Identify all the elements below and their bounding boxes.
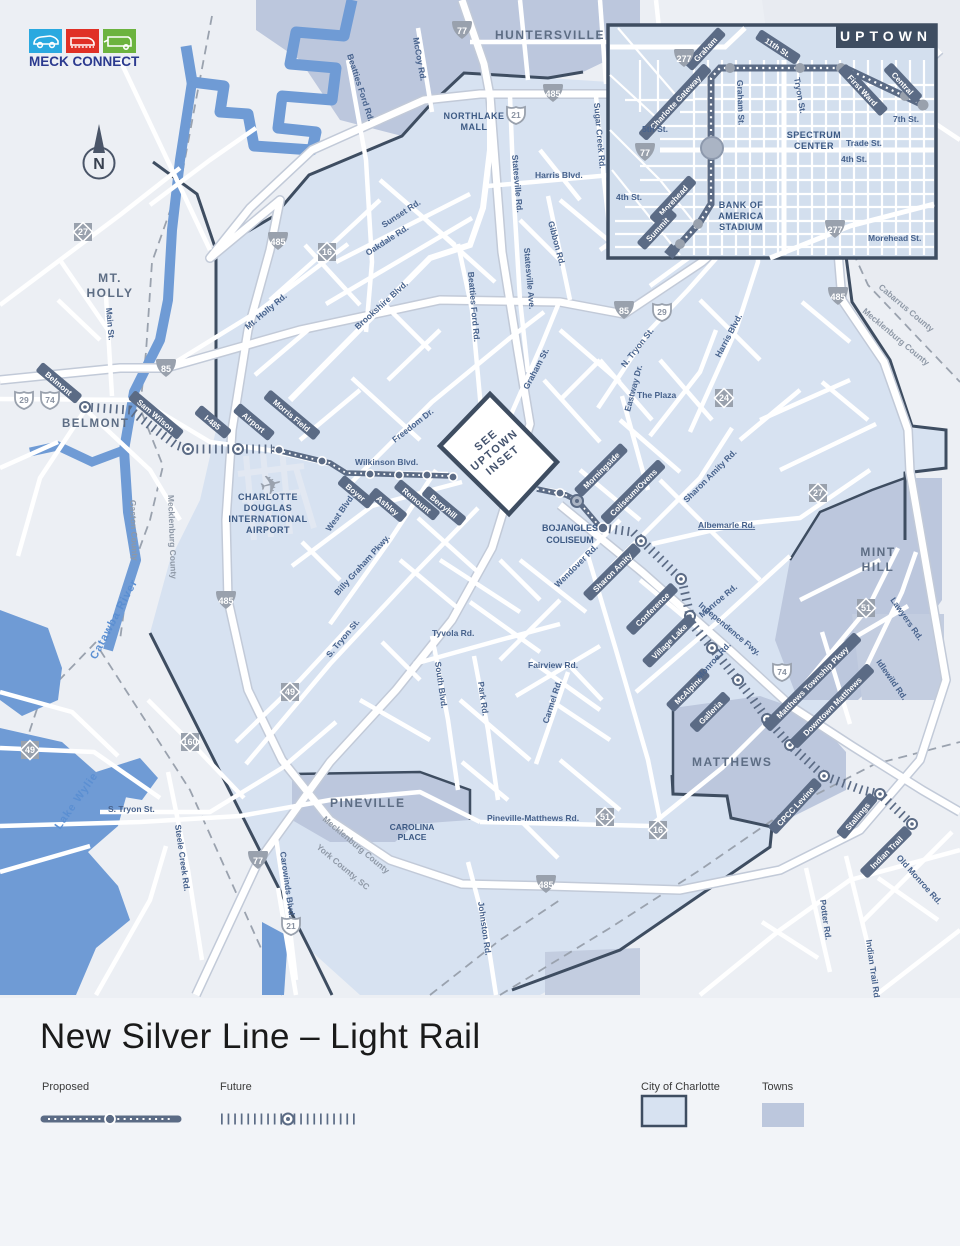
svg-text:85: 85 [161, 364, 171, 374]
svg-text:485: 485 [270, 237, 285, 247]
svg-text:Tyvola Rd.: Tyvola Rd. [432, 628, 474, 638]
svg-text:Trade St.: Trade St. [846, 138, 882, 148]
svg-text:MINTHILL: MINTHILL [860, 545, 895, 574]
svg-text:HUNTERSVILLE: HUNTERSVILLE [495, 28, 605, 42]
svg-text:77: 77 [253, 856, 263, 866]
svg-text:277: 277 [676, 54, 691, 64]
svg-text:160: 160 [182, 737, 197, 747]
svg-text:77: 77 [457, 26, 467, 36]
svg-text:BELMONT: BELMONT [62, 418, 129, 430]
svg-text:74: 74 [45, 395, 55, 405]
svg-text:Albemarle Rd.: Albemarle Rd. [698, 520, 755, 530]
svg-text:Future: Future [220, 1081, 252, 1093]
svg-text:485: 485 [830, 292, 845, 302]
svg-text:27: 27 [78, 227, 88, 237]
svg-text:Fairview Rd.: Fairview Rd. [528, 660, 578, 670]
svg-text:S. Tryon St.: S. Tryon St. [108, 804, 155, 814]
svg-text:Morehead St.: Morehead St. [868, 233, 921, 243]
svg-text:Wilkinson Blvd.: Wilkinson Blvd. [355, 457, 418, 467]
svg-text:Towns: Towns [762, 1081, 794, 1093]
svg-text:Graham St.: Graham St. [735, 80, 747, 126]
svg-text:485: 485 [218, 596, 233, 606]
svg-text:24: 24 [719, 393, 729, 403]
svg-text:MECK CONNECT: MECK CONNECT [29, 54, 140, 69]
svg-text:Proposed: Proposed [42, 1081, 89, 1093]
svg-text:21: 21 [286, 921, 296, 931]
svg-text:277: 277 [827, 225, 842, 235]
svg-text:51: 51 [861, 603, 871, 613]
svg-text:16: 16 [653, 825, 663, 835]
svg-text:85: 85 [619, 306, 629, 316]
svg-text:49: 49 [285, 687, 295, 697]
svg-text:485: 485 [538, 880, 553, 890]
svg-text:29: 29 [657, 307, 667, 317]
svg-text:4th St.: 4th St. [841, 154, 867, 164]
svg-text:27: 27 [813, 488, 823, 498]
svg-text:BANK OFAMERICASTADIUM: BANK OFAMERICASTADIUM [718, 200, 764, 232]
svg-text:16: 16 [322, 247, 332, 257]
svg-text:UPTOWN: UPTOWN [840, 28, 932, 44]
svg-text:29: 29 [19, 395, 29, 405]
svg-text:Gaston County: Gaston County [128, 500, 140, 561]
svg-text:N: N [93, 156, 105, 173]
svg-text:Pineville-Matthews Rd.: Pineville-Matthews Rd. [487, 813, 579, 823]
svg-text:5th St.: 5th St. [642, 124, 668, 134]
svg-text:PINEVILLE: PINEVILLE [330, 796, 406, 810]
svg-text:City of Charlotte: City of Charlotte [641, 1081, 720, 1093]
svg-text:Harris Blvd.: Harris Blvd. [535, 170, 583, 180]
svg-text:MATTHEWS: MATTHEWS [692, 755, 772, 769]
svg-text:SPECTRUMCENTER: SPECTRUMCENTER [787, 130, 842, 151]
svg-text:New Silver Line – Light Rail: New Silver Line – Light Rail [40, 1017, 481, 1056]
svg-text:77: 77 [640, 148, 650, 158]
svg-text:7th St.: 7th St. [893, 114, 919, 124]
svg-text:21: 21 [511, 110, 521, 120]
svg-text:49: 49 [25, 745, 35, 755]
svg-text:74: 74 [777, 667, 787, 677]
svg-text:The Plaza: The Plaza [637, 390, 676, 400]
svg-text:4th St.: 4th St. [616, 192, 642, 202]
svg-text:51: 51 [600, 812, 610, 822]
svg-text:485: 485 [545, 89, 560, 99]
